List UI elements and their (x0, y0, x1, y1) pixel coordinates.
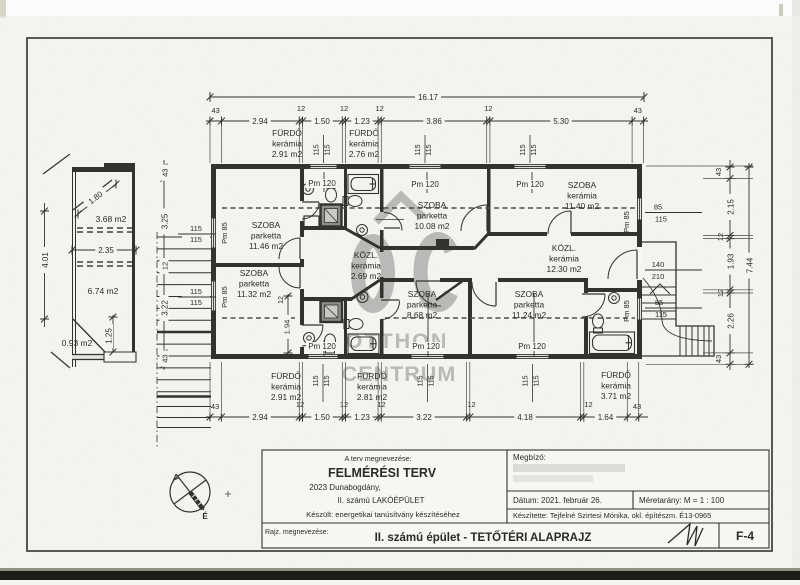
svg-text:kerámia: kerámia (272, 139, 302, 149)
svg-text:43: 43 (212, 106, 220, 115)
svg-text:1.23: 1.23 (354, 117, 370, 126)
svg-text:115: 115 (190, 235, 202, 244)
svg-text:11.32 m2: 11.32 m2 (237, 289, 272, 299)
svg-text:1.50: 1.50 (314, 413, 330, 422)
svg-text:KÖZL.: KÖZL. (552, 243, 576, 253)
svg-text:kerámia: kerámia (601, 381, 631, 391)
svg-text:43: 43 (714, 168, 723, 176)
svg-text:1.25: 1.25 (105, 328, 114, 344)
svg-text:Pm 85: Pm 85 (220, 286, 229, 308)
svg-text:43: 43 (211, 402, 219, 411)
svg-text:7.44: 7.44 (746, 257, 755, 273)
svg-text:SZOBA: SZOBA (252, 220, 281, 230)
svg-text:2.15: 2.15 (727, 199, 736, 215)
svg-text:3.86: 3.86 (426, 117, 442, 126)
svg-text:4.01: 4.01 (41, 252, 50, 268)
svg-text:8.68 m2: 8.68 m2 (407, 310, 438, 320)
svg-text:1.50: 1.50 (314, 117, 330, 126)
svg-text:2.94: 2.94 (252, 117, 268, 126)
svg-text:115: 115 (415, 144, 422, 155)
svg-text:3.71 m2: 3.71 m2 (601, 391, 632, 401)
svg-text:parketta: parketta (239, 279, 270, 289)
svg-text:Pm 85: Pm 85 (220, 222, 229, 244)
svg-text:115: 115 (426, 144, 433, 155)
svg-text:115: 115 (190, 287, 202, 296)
svg-text:Készítette: Tejfelné Szirtesi: Készítette: Tejfelné Szirtesi Mónika, ok… (513, 511, 711, 520)
svg-text:115: 115 (531, 144, 538, 155)
svg-text:Pm 85: Pm 85 (622, 211, 631, 233)
svg-text:11.24 m2: 11.24 m2 (512, 310, 547, 320)
svg-text:43: 43 (160, 354, 169, 362)
svg-text:Pm 120: Pm 120 (308, 179, 336, 188)
svg-text:II. számú LAKÓÉPÜLET: II. számú LAKÓÉPÜLET (337, 496, 424, 505)
svg-text:85: 85 (654, 203, 662, 212)
svg-text:16.17: 16.17 (418, 93, 439, 102)
svg-text:115: 115 (655, 310, 667, 319)
svg-text:115: 115 (523, 375, 530, 386)
svg-text:kerámia: kerámia (549, 254, 579, 264)
svg-text:A terv megnevezése:: A terv megnevezése: (344, 454, 411, 463)
svg-text:kerámia: kerámia (357, 382, 387, 392)
svg-text:210: 210 (652, 272, 665, 281)
svg-text:FÜRDŐ: FÜRDŐ (349, 128, 379, 138)
svg-text:1.64: 1.64 (598, 413, 614, 422)
svg-text:2.94: 2.94 (252, 413, 268, 422)
svg-text:12: 12 (161, 262, 170, 270)
svg-text:85: 85 (655, 298, 663, 307)
svg-text:II. számú épület - TETŐTÉRI AL: II. számú épület - TETŐTÉRI ALAPRAJZ (375, 531, 592, 544)
svg-text:3.22: 3.22 (161, 300, 170, 316)
svg-text:11.46 m2: 11.46 m2 (249, 241, 284, 251)
svg-text:140: 140 (652, 260, 665, 269)
svg-text:115: 115 (190, 224, 202, 233)
svg-text:11.40 m2: 11.40 m2 (565, 201, 600, 211)
svg-text:É: É (202, 512, 208, 521)
svg-text:2.26: 2.26 (727, 313, 736, 329)
svg-text:3.25: 3.25 (161, 213, 170, 229)
svg-text:FELMÉRÉSI TERV: FELMÉRÉSI TERV (328, 465, 437, 480)
svg-text:SZOBA: SZOBA (240, 268, 269, 278)
svg-text:115: 115 (429, 375, 436, 386)
svg-text:SZOBA: SZOBA (408, 289, 437, 299)
svg-text:3.22: 3.22 (416, 413, 432, 422)
svg-text:10.08 m2: 10.08 m2 (415, 221, 450, 231)
svg-text:115: 115 (534, 375, 541, 386)
svg-text:F-4: F-4 (736, 529, 754, 543)
svg-text:12: 12 (584, 400, 592, 409)
svg-text:FÜRDŐ: FÜRDŐ (271, 371, 301, 381)
svg-text:3.68 m2: 3.68 m2 (96, 214, 127, 224)
svg-text:Pm 120: Pm 120 (412, 342, 440, 351)
svg-text:115: 115 (313, 375, 320, 386)
svg-text:12: 12 (376, 104, 384, 113)
svg-text:1.23: 1.23 (354, 413, 370, 422)
svg-text:FÜRDŐ: FÜRDŐ (357, 371, 387, 381)
svg-text:Készült: energetikai tanúsítvá: Készült: energetikai tanúsítvány készíté… (306, 510, 460, 519)
svg-text:115: 115 (655, 215, 667, 224)
svg-text:parketta: parketta (407, 300, 438, 310)
svg-text:Pm 120: Pm 120 (516, 180, 544, 189)
svg-text:SZOBA: SZOBA (568, 180, 597, 190)
svg-text:Dátum: 2021. február 26.: Dátum: 2021. február 26. (513, 496, 602, 505)
svg-text:43: 43 (714, 355, 723, 363)
svg-text:Megbízó:: Megbízó: (513, 453, 546, 462)
svg-text:43: 43 (633, 402, 641, 411)
svg-text:115: 115 (325, 144, 332, 155)
svg-text:FÜRDŐ: FÜRDŐ (601, 370, 631, 380)
svg-text:12: 12 (340, 104, 348, 113)
svg-text:2.35: 2.35 (98, 246, 114, 255)
svg-text:FÜRDŐ: FÜRDŐ (272, 128, 302, 138)
svg-text:KÖZL.: KÖZL. (354, 250, 378, 260)
svg-text:Pm 120: Pm 120 (411, 180, 439, 189)
svg-text:115: 115 (418, 375, 425, 386)
svg-text:12: 12 (278, 296, 285, 304)
svg-text:1.94: 1.94 (283, 320, 292, 335)
svg-text:Pm 85: Pm 85 (622, 300, 631, 322)
svg-text:Pm 120: Pm 120 (518, 342, 546, 351)
svg-text:kerámia: kerámia (349, 139, 379, 149)
svg-text:Méretarány: M = 1 : 100: Méretarány: M = 1 : 100 (639, 496, 725, 505)
svg-text:5.30: 5.30 (553, 117, 569, 126)
svg-text:6.74 m2: 6.74 m2 (88, 286, 119, 296)
svg-text:Pm 120: Pm 120 (308, 342, 336, 351)
svg-text:parketta: parketta (417, 211, 448, 221)
svg-text:kerámia: kerámia (567, 191, 597, 201)
svg-text:12: 12 (716, 233, 725, 241)
svg-text:12: 12 (296, 400, 304, 409)
svg-text:0.93 m2: 0.93 m2 (62, 338, 93, 348)
svg-text:2.91 m2: 2.91 m2 (272, 149, 303, 159)
svg-text:115: 115 (314, 144, 321, 155)
svg-text:2.76 m2: 2.76 m2 (349, 149, 380, 159)
svg-text:12.30 m2: 12.30 m2 (547, 264, 582, 274)
svg-text:2.69 m2: 2.69 m2 (351, 271, 382, 281)
svg-text:kerámia: kerámia (351, 261, 381, 271)
svg-text:12: 12 (297, 104, 305, 113)
svg-text:4.18: 4.18 (517, 413, 533, 422)
svg-text:parketta: parketta (251, 231, 282, 241)
svg-text:parketta: parketta (514, 300, 545, 310)
svg-text:12: 12 (467, 400, 475, 409)
svg-text:115: 115 (324, 375, 331, 386)
svg-text:43: 43 (634, 106, 642, 115)
svg-text:12: 12 (484, 104, 492, 113)
svg-text:SZOBA: SZOBA (515, 289, 544, 299)
svg-text:115: 115 (190, 298, 202, 307)
svg-text:Rajz. megnevezése:: Rajz. megnevezése: (265, 529, 328, 536)
svg-text:43: 43 (160, 169, 169, 177)
svg-text:12: 12 (340, 400, 348, 409)
svg-text:2023 Dunabogdány,: 2023 Dunabogdány, (309, 483, 380, 492)
svg-text:1.93: 1.93 (727, 253, 736, 269)
svg-text:SZOBA: SZOBA (418, 200, 447, 210)
svg-text:kerámia: kerámia (271, 382, 301, 392)
svg-text:115: 115 (520, 144, 527, 155)
